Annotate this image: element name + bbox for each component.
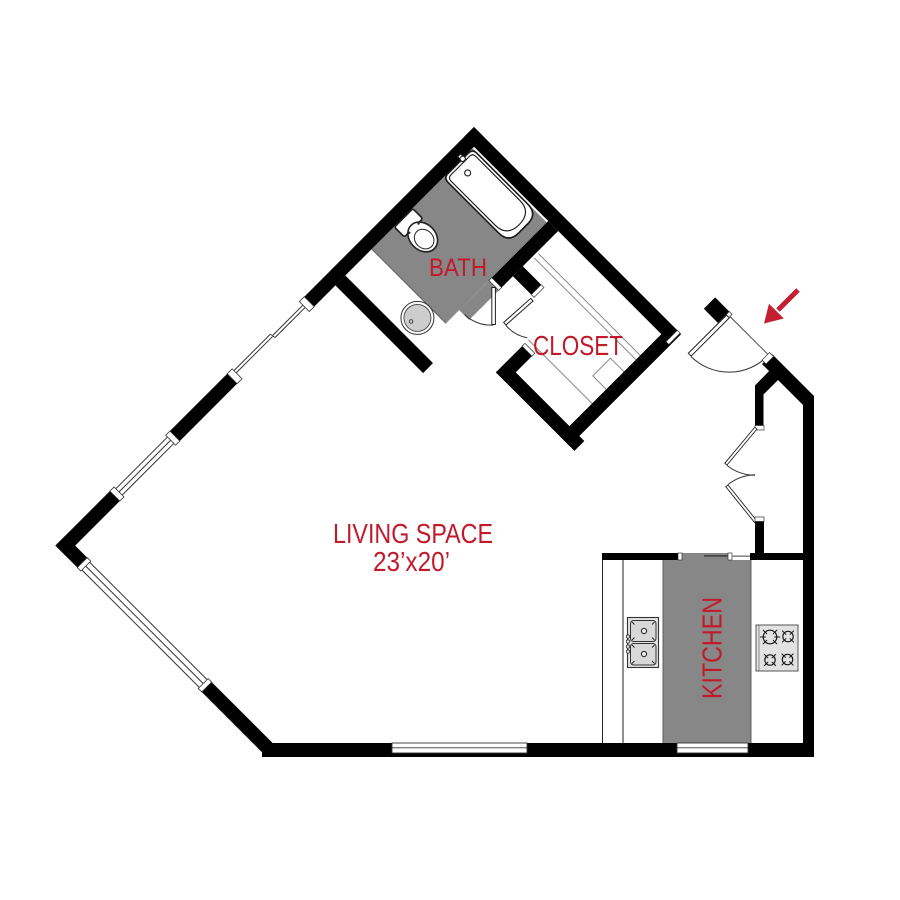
svg-text:LIVING SPACE: LIVING SPACE [333,518,493,549]
svg-text:KITCHEN: KITCHEN [697,597,728,699]
svg-text:CLOSET: CLOSET [533,330,623,361]
svg-text:BATH: BATH [429,254,487,282]
svg-text:23’x20’: 23’x20’ [373,546,450,577]
